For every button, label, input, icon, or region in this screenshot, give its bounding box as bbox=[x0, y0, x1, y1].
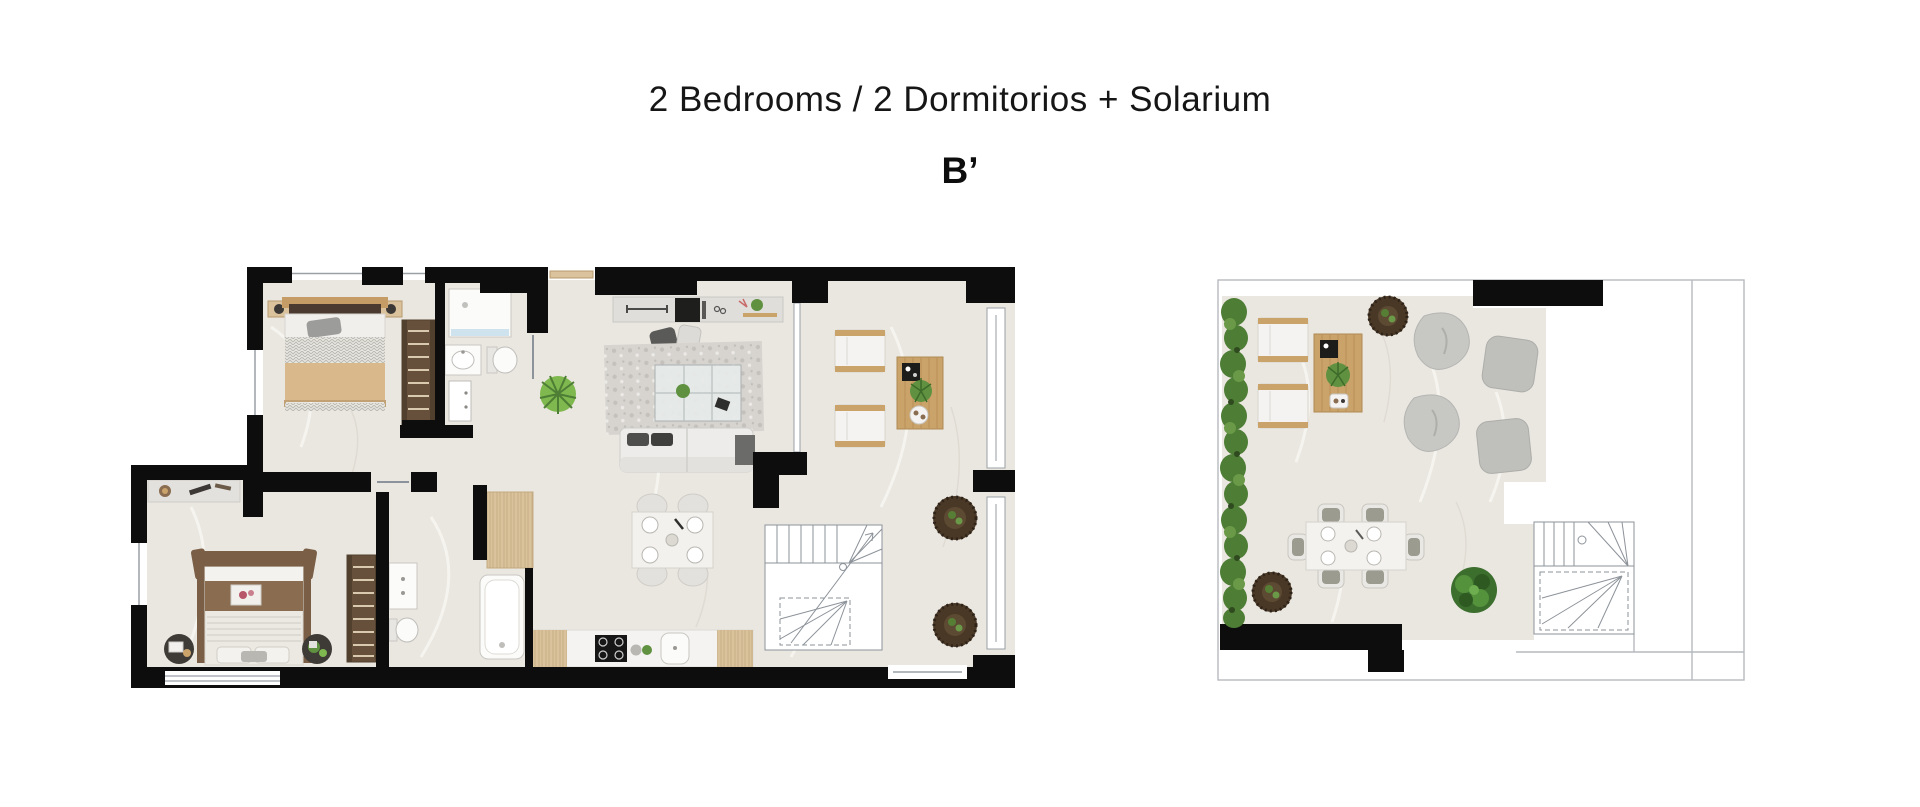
tall-wood-cabinet bbox=[487, 492, 533, 568]
round-planter bbox=[1368, 296, 1408, 336]
double-bed bbox=[268, 297, 402, 411]
shower bbox=[449, 289, 511, 337]
sun-lounger bbox=[1258, 318, 1308, 362]
bathroom-door bbox=[449, 381, 471, 421]
vanity bbox=[389, 563, 417, 609]
main-floor-plan bbox=[131, 267, 1015, 688]
solarium-plan bbox=[1206, 272, 1751, 688]
kitchen-counter bbox=[533, 630, 753, 667]
terrace-wood-table bbox=[897, 357, 943, 429]
bedside-round-table bbox=[302, 634, 332, 664]
garden-bush bbox=[1451, 567, 1497, 613]
wardrobe-2 bbox=[347, 555, 380, 662]
lounge-pouf bbox=[1481, 335, 1540, 394]
unit-label: B’ bbox=[0, 150, 1920, 192]
wood-side-table bbox=[1314, 334, 1362, 412]
wardrobe bbox=[402, 320, 435, 434]
plant-icon bbox=[642, 645, 652, 655]
page-title: 2 Bedrooms / 2 Dormitorios + Solarium bbox=[0, 80, 1920, 120]
terrace-lounge-chair bbox=[835, 405, 885, 447]
sofa bbox=[620, 428, 755, 472]
double-bed-2 bbox=[191, 548, 318, 665]
washbasin bbox=[445, 345, 481, 375]
bedside-round-table bbox=[164, 634, 194, 664]
toilet-2 bbox=[389, 618, 418, 642]
window bbox=[165, 671, 280, 685]
coffee-table bbox=[655, 365, 741, 421]
round-planter bbox=[933, 603, 977, 647]
terrace-lounge-chair bbox=[835, 330, 885, 372]
sun-lounger bbox=[1258, 384, 1308, 428]
bathtub bbox=[480, 575, 524, 659]
lounge-pouf bbox=[1475, 417, 1532, 474]
desk bbox=[148, 480, 240, 502]
staircase bbox=[765, 525, 882, 650]
toilet bbox=[487, 347, 517, 373]
main-floor-plan-svg bbox=[131, 267, 1015, 688]
round-planter bbox=[1252, 572, 1292, 612]
tv-sideboard bbox=[613, 297, 783, 322]
plant-icon bbox=[751, 299, 763, 311]
staircase bbox=[1534, 522, 1634, 634]
kettle bbox=[631, 645, 642, 656]
round-planter bbox=[933, 496, 977, 540]
sliding-glass-door bbox=[794, 303, 800, 452]
side-table bbox=[735, 435, 755, 465]
solarium-plan-svg bbox=[1206, 272, 1751, 688]
